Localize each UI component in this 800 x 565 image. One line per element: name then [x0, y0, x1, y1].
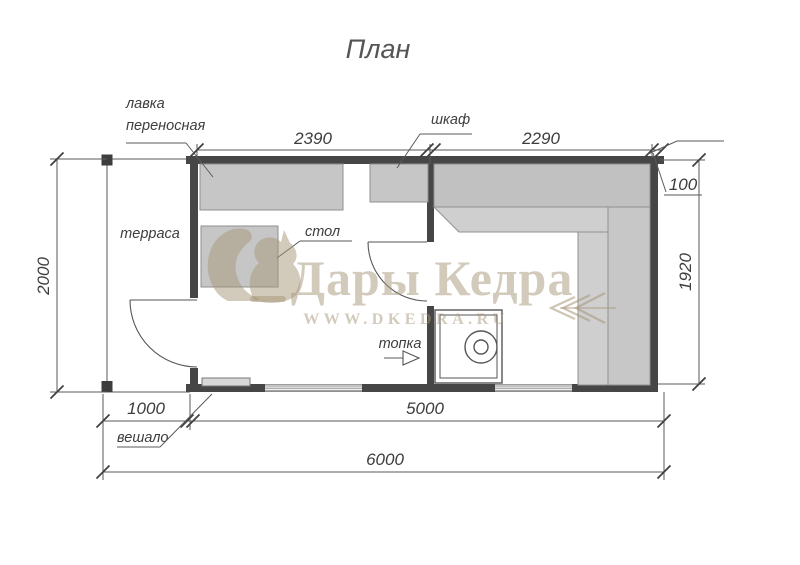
- hanger: [202, 378, 250, 386]
- door-terrace: [130, 300, 197, 367]
- sauna-bench-side-high: [608, 207, 650, 385]
- window-room2: [495, 385, 572, 392]
- dim-room1-width: 2390: [293, 129, 332, 148]
- terrace-post-bottom: [102, 381, 113, 392]
- dim-room2-depth: 1920: [676, 253, 695, 291]
- svg-text:топка: топка: [379, 336, 422, 352]
- svg-text:шкаф: шкаф: [431, 112, 470, 128]
- label-firebox: топка: [379, 336, 422, 365]
- wall-east: [650, 156, 658, 392]
- svg-text:лавка: лавка: [125, 96, 165, 112]
- plan-title: План: [346, 34, 411, 64]
- svg-text:стол: стол: [305, 224, 340, 240]
- portable-bench: [200, 164, 343, 210]
- dimension-bottom: 1000 5000 6000: [97, 392, 671, 480]
- floor-plan-page: План терраса: [0, 0, 800, 565]
- cabinet: [370, 164, 428, 202]
- dim-terrace-width: 1000: [127, 399, 165, 418]
- dim-wall-thickness: 100: [669, 175, 698, 194]
- terrace-label: терраса: [120, 226, 180, 242]
- svg-text:вешало: вешало: [117, 430, 169, 446]
- dim-terrace-depth: 2000: [34, 257, 53, 296]
- dim-building-length: 5000: [406, 399, 444, 418]
- terrace-post-top: [102, 155, 113, 166]
- sauna-bench-top: [434, 164, 650, 207]
- floor-plan-canvas: План терраса: [0, 0, 800, 565]
- watermark-brand: Дары Кедра: [291, 250, 574, 306]
- firebox-arrow-icon: [403, 351, 419, 365]
- svg-text:переносная: переносная: [126, 118, 206, 134]
- door-opening-west: [189, 298, 199, 368]
- dim-room2-width: 2290: [521, 129, 560, 148]
- wall-north: [186, 156, 664, 164]
- sauna-bench-step: [434, 207, 608, 232]
- dim-total-length: 6000: [366, 450, 404, 469]
- watermark-site: WWW.DKEDRA.RU: [303, 311, 508, 328]
- terrace-outline: [102, 155, 191, 393]
- dimension-left: 2000: [34, 153, 107, 399]
- watermark: Дары Кедра WWW.DKEDRA.RU: [208, 228, 616, 328]
- window-room1: [265, 385, 362, 392]
